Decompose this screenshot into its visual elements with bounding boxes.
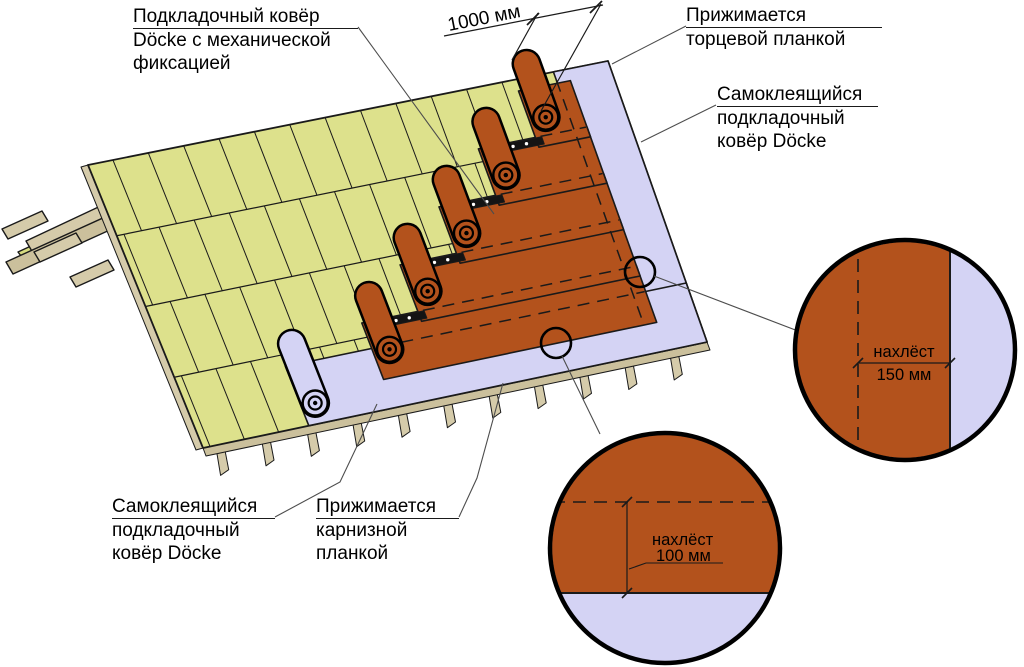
roll-spiral-center <box>313 401 317 405</box>
label-line: фиксацией <box>133 52 358 75</box>
label-underlayment-mechanical: Подкладочный ковёр Döcke с механической … <box>133 5 358 75</box>
leader-self-adhesive-gable <box>641 105 716 142</box>
detail-circle-side-overlap: нахлёст 150 мм <box>793 238 1015 464</box>
label-pressed-eaves-strip: Прижимается карнизной планкой <box>316 495 459 565</box>
label-line: планкой <box>316 542 459 565</box>
nail-dot <box>472 203 475 206</box>
label-pressed-end-strip: Прижимается торцевой планкой <box>686 4 882 51</box>
overlap-side-label: нахлёст <box>873 343 935 361</box>
label-line: ковёр Döcke <box>112 542 275 565</box>
label-line: Прижимается <box>316 495 459 519</box>
label-line: карнизной <box>316 519 459 542</box>
label-line: подкладочный <box>717 107 878 130</box>
nail-dot <box>525 142 528 145</box>
label-self-adhesive-eaves: Самоклеящийся подкладочный ковёр Döcke <box>112 495 275 565</box>
overlap-course-value: 100 мм <box>656 547 711 565</box>
roll-spiral-center <box>504 173 508 177</box>
label-line: ковёр Döcke <box>717 130 878 153</box>
dimension-roll-width-text: 1000 мм <box>446 1 522 36</box>
nail-dot <box>511 145 514 148</box>
label-line: Döcke с механической <box>133 29 358 52</box>
detail-orange-layer <box>550 433 782 593</box>
label-line: торцевой планкой <box>686 28 882 51</box>
label-line: Прижимается <box>686 4 882 28</box>
roll-spiral-center <box>387 347 391 351</box>
label-line: Самоклеящийся <box>717 83 878 107</box>
label-line: подкладочный <box>112 519 275 542</box>
detail-circle-course-overlap: нахлёст 100 мм <box>550 433 782 663</box>
roll-spiral-center <box>544 115 548 119</box>
roll-spiral-center <box>425 289 429 293</box>
label-line: Подкладочный ковёр <box>133 5 358 29</box>
diagram-canvas: нахлёст 150 мм нахлёст 100 мм 1000 мм По… <box>0 0 1024 667</box>
nail-dot <box>446 258 449 261</box>
roll-spiral-center <box>464 231 468 235</box>
rafter-tip <box>70 260 114 287</box>
overlap-side-value: 150 мм <box>877 366 932 384</box>
nail-dot <box>408 316 411 319</box>
leader-pressed-end <box>612 26 686 64</box>
label-self-adhesive-gable: Самоклеящийся подкладочный ковёр Döcke <box>717 83 878 153</box>
label-line: Самоклеящийся <box>112 495 275 519</box>
